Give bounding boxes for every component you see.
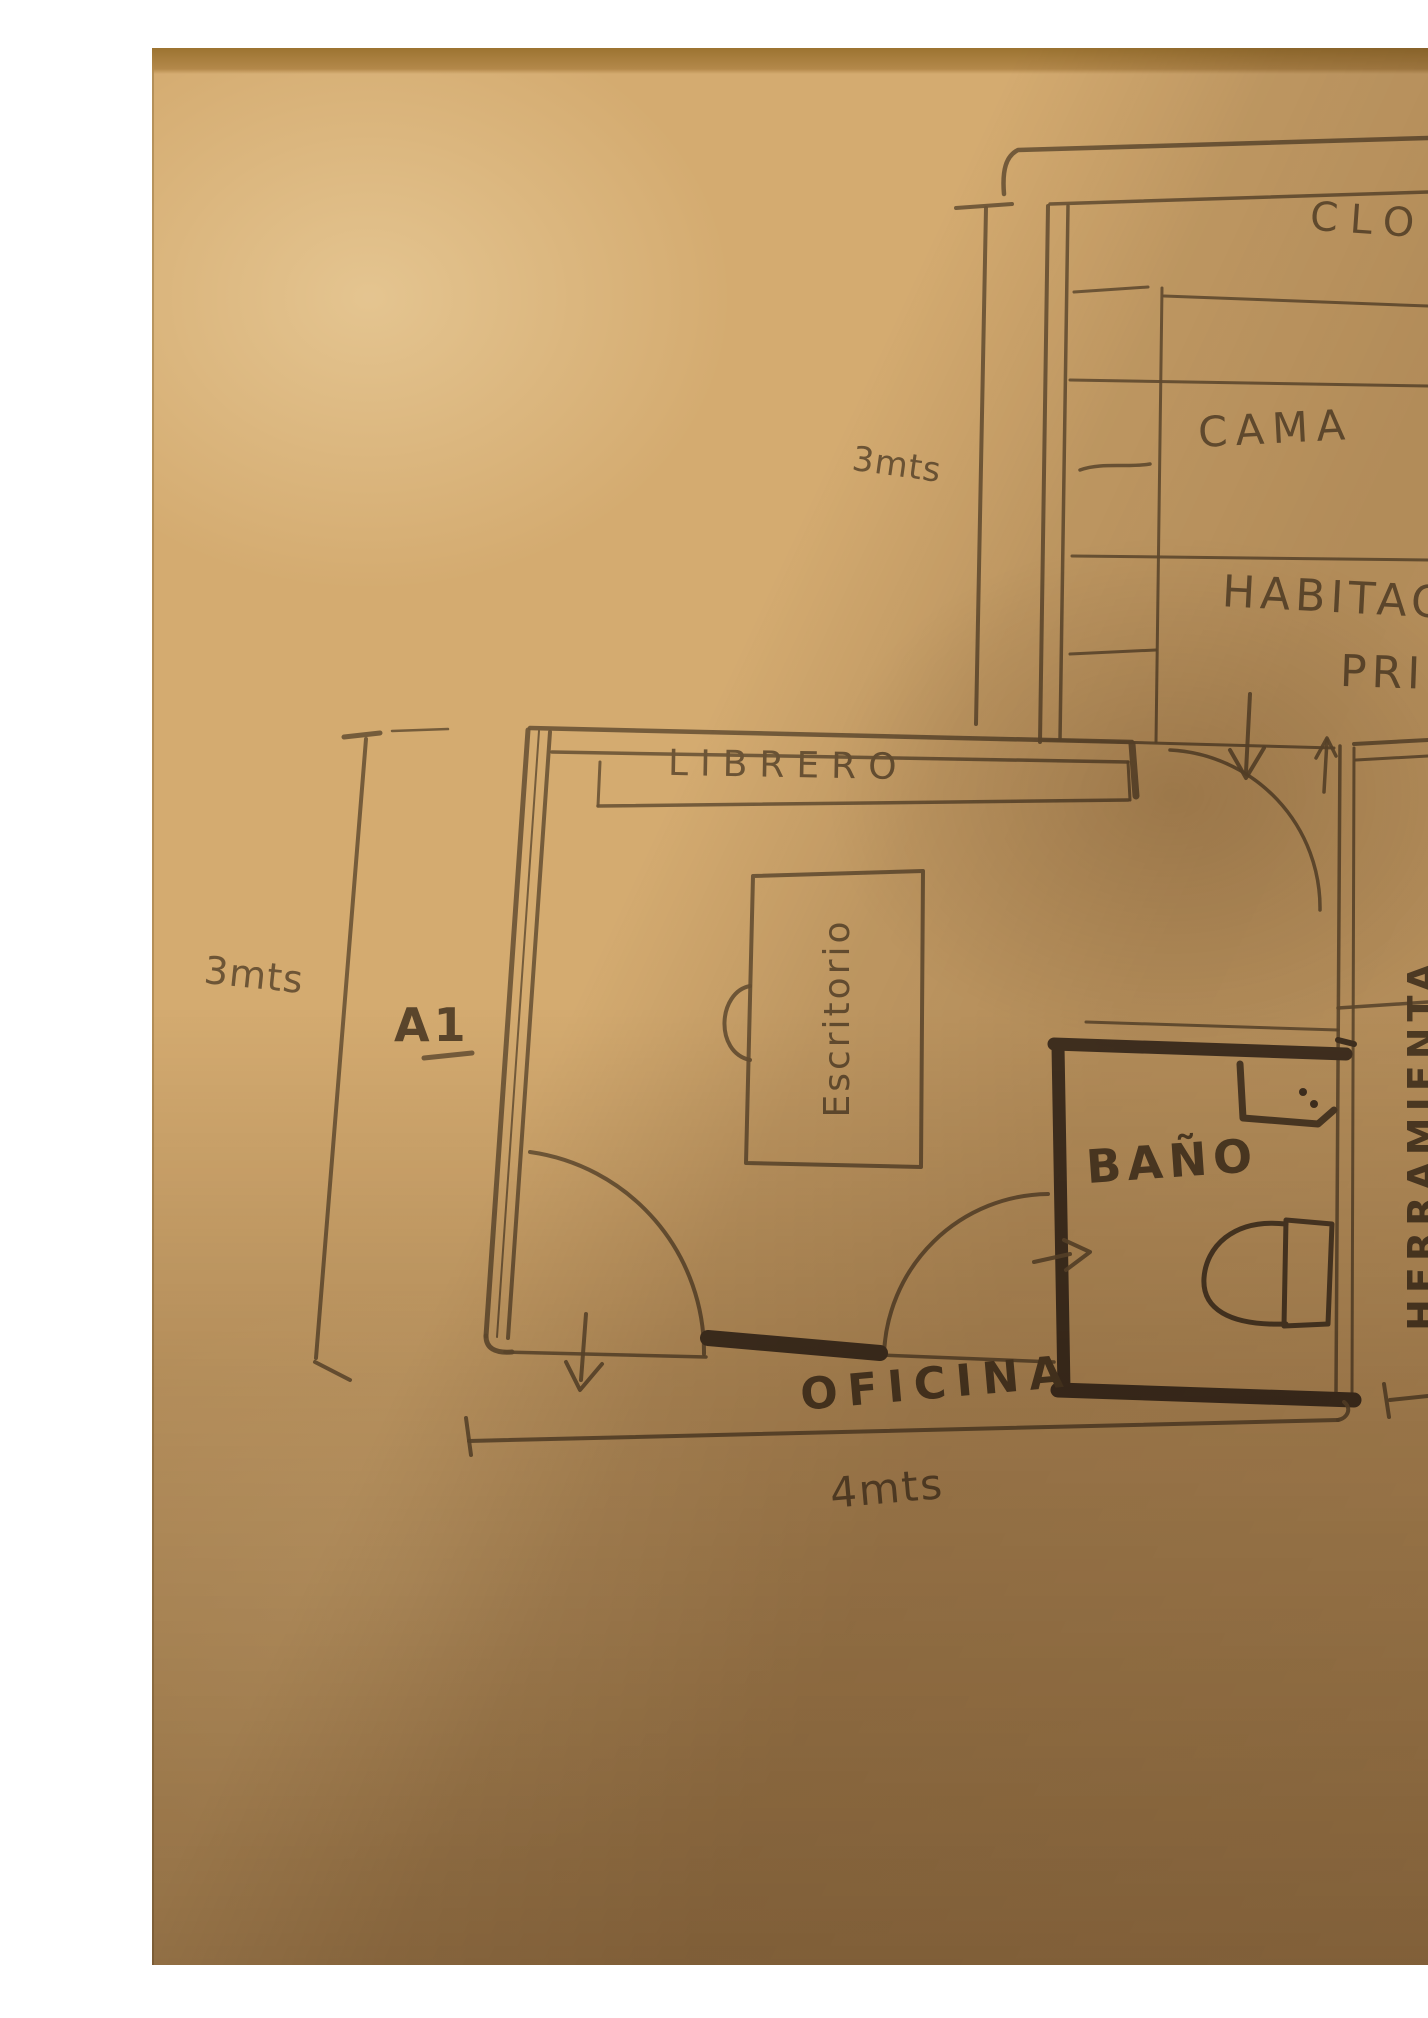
bedroom-dimension-line [956, 204, 1012, 724]
closet-lines [1074, 287, 1428, 306]
label-herramienta: HERRAMIENTA [1403, 934, 1428, 1354]
floorplan-sketch [0, 0, 1428, 2018]
label-habitacion-line2: PRIN [1339, 650, 1428, 698]
label-dimension-office-4mts: 4mts [828, 1463, 945, 1515]
label-escritorio: Escritorio [820, 858, 856, 1178]
sink [1240, 1064, 1334, 1124]
label-dimension-office-3mts: 3mts [202, 951, 305, 999]
office-depth-dimension [315, 729, 448, 1380]
photo-of-floor-plan-sketch: CLOS CAMA HABITAC PRIN 3mts LIBRERO Escr… [0, 0, 1428, 2018]
bathroom-walls [1054, 1022, 1354, 1400]
label-cama: CAMA [1197, 404, 1354, 454]
label-bano: BAÑO [1085, 1132, 1260, 1190]
office-walls [486, 728, 1132, 1362]
label-unit-a1: A1 [394, 1002, 470, 1048]
label-closet: CLOS [1309, 197, 1428, 248]
label-librero: LIBRERO [668, 746, 909, 786]
a1-underline [424, 1053, 472, 1058]
label-habitacion-line1: HABITAC [1221, 570, 1428, 626]
toilet [1204, 1220, 1332, 1326]
